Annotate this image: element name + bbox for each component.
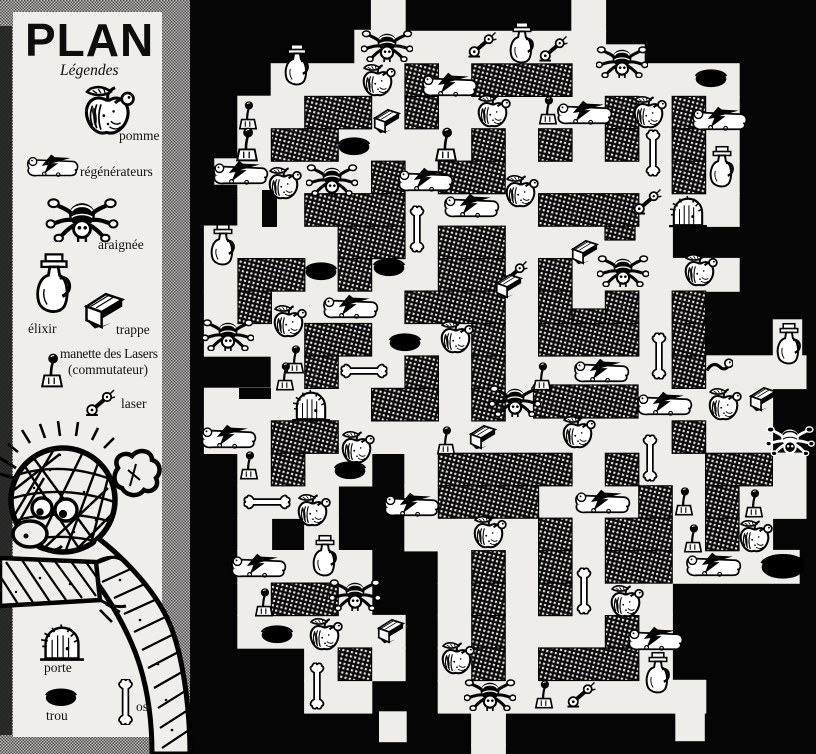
svg-text:régénérateurs: régénérateurs — [80, 164, 153, 179]
svg-text:porte: porte — [44, 660, 72, 675]
svg-text:Légendes: Légendes — [59, 62, 119, 79]
svg-text:PLAN: PLAN — [25, 14, 154, 66]
svg-text:pomme: pomme — [119, 128, 160, 143]
svg-text:araignée: araignée — [98, 237, 144, 252]
svg-text:élixir: élixir — [28, 321, 57, 336]
svg-text:trappe: trappe — [116, 322, 150, 337]
svg-text:(commutateur): (commutateur) — [68, 362, 148, 377]
svg-text:os: os — [136, 699, 148, 714]
svg-text:manette des Lasers: manette des Lasers — [60, 346, 158, 361]
svg-text:trou: trou — [46, 708, 68, 723]
svg-text:laser: laser — [121, 396, 147, 411]
